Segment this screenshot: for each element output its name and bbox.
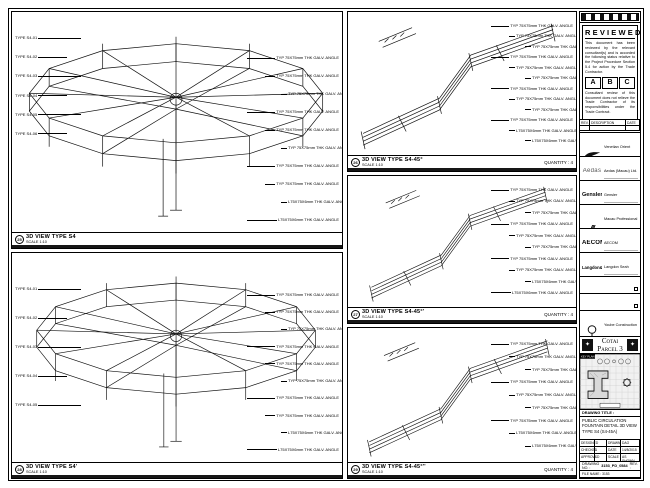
view-title-bar-s4: 25 3D VIEW TYPE S4 SCALE 1:10 [12,232,342,248]
langdon-seah-logo-icon: Langdon&Seah [582,265,602,270]
contractor-logo-icon [582,325,602,337]
drawing-sheet: TYPE S4-01TYPE S4-02TYPE S4-03TYPE S4-04… [8,8,644,481]
wireframe-pipes-icon [348,12,576,155]
drawing-s4-45-prime: TYP 75X75mm THK GALV. ANGLETYP 75X75mm T… [348,176,576,307]
view-scale: SCALE 1:10 [26,240,76,244]
consultant-checkbox [634,304,638,308]
consultant-row-empty-1 [580,277,640,294]
revision-label: REV. : [630,462,638,470]
consultant-name: Macau Professional Services Ltd. [604,217,637,229]
designed-label: DESIGNED [580,440,595,447]
ornament-icon: ✦ [627,339,638,351]
consultant-name: AECOM [604,241,618,245]
checked-value: - [595,447,607,454]
title-block: REVIEWED This document has been reviewed… [579,11,641,479]
checked-label: CHECKED [580,447,595,454]
reviewed-title: REVIEWED [585,28,635,39]
project-banner: ✦ Cotai Parcel 3 ✦ [580,337,640,354]
consultant-row-langdon: Langdon&Seah Langdon Seah [580,253,640,277]
info-table: DESIGNED DRAWN DAO CHECKED - DATE 14/8/2… [580,440,640,462]
viewport-s4-45-prime: TYP 75X75mm THK GALV. ANGLETYP 75X75mm T… [347,175,577,324]
consultant-row-aedas: Aedas Aedas (Macau) Ltd. [580,157,640,181]
detail-bubble: 27 [351,310,360,319]
scale-label: SCALE [607,454,621,462]
reviewed-paragraph-1: This document has been reviewed by the r… [585,41,635,75]
view-title-bar-s4-45-dprime: 29 3D VIEW TYPE S4-45°'' SCALE 1:10 QUAN… [348,462,576,478]
view-scale: SCALE 1:10 [362,163,423,167]
drawing-s4-45-dprime: TYP 75X75mm THK GALV. ANGLETYP 75X75mm T… [348,328,576,462]
file-info: FILE NAME : 3153 CAD FILE : B5_WORKING_D… [580,471,640,478]
drawn-label: DRAWN [607,440,621,447]
gensler-logo-icon: Gensler [582,192,602,198]
quantity-label: QUANTITY : 4 [544,312,573,317]
drawing-s4-prime: TYPE S4-01TYPE S4-02TYPE S4-03TYPE S4-04… [12,253,342,462]
quantity-label: QUANTITY : 4 [544,467,573,472]
key-plan-map-icon: KEY PLAN [580,354,640,409]
wireframe-pipes-icon [348,328,576,462]
date-label: DATE [607,447,621,454]
approved-value: - [595,454,607,462]
venetian-logo-icon [582,150,602,157]
view-title-bar-s4-prime: 28 3D VIEW TYPE S4' SCALE 1:10 [12,462,342,478]
wireframe-canopy-icon [12,253,342,462]
drawing-s4: TYPE S4-01TYPE S4-02TYPE S4-03TYPE S4-04… [12,12,342,232]
view-scale: SCALE 1:10 [362,470,426,474]
status-a: A [585,77,601,89]
drawing-s4-45: TYP 75X75mm THK GALV. ANGLETYP 75X75mm T… [348,12,576,155]
revision-table: REV. DESCRIPTION DATE [580,120,640,133]
aecom-logo-icon: AECOM [582,240,602,246]
status-c: C [619,77,635,89]
consultant-name: Langdon Seah [604,265,629,269]
drawn-value: DAO [621,440,640,447]
detail-bubble: 29 [351,465,360,474]
consultant-name: Venetian Orient Limited [604,145,630,157]
viewport-s4-45: TYP 75X75mm THK GALV. ANGLETYP 75X75mm T… [347,11,577,172]
contractor-name: Yoube Construction (Macau) Co. Ltd. [604,323,637,337]
status-boxes: A B C [585,77,635,89]
file-name-row: FILE NAME : 3153 [580,471,640,478]
wireframe-canopy-icon [12,12,342,232]
project-name: Cotai Parcel 3 [593,337,627,353]
quantity-label: QUANTITY : 4 [544,160,573,165]
drawing-number: 3153_PD_0584 [601,464,627,468]
consultant-row-gensler: Gensler Gensler [580,181,640,205]
designed-value [595,440,607,447]
scale-value: AS SHOWN [621,454,640,462]
consultant-row-venetian: Venetian Orient Limited [580,133,640,157]
viewport-s4-prime: TYPE S4-01TYPE S4-02TYPE S4-03TYPE S4-04… [11,252,343,479]
status-b: B [602,77,618,89]
scale-bar [580,12,640,23]
detail-bubble: 25 [15,235,24,244]
view-title-bar-s4-45: 26 3D VIEW TYPE S4-45° SCALE 1:10 QUANTI… [348,155,576,171]
detail-bubble: 26 [351,158,360,167]
view-title-bar-s4-45-prime: 27 3D VIEW TYPE S4-45°' SCALE 1:10 QUANT… [348,307,576,323]
approved-label: APPROVED [580,454,595,462]
drawing-title-label: DRAWING TITLE : [580,410,640,417]
aedas-logo-icon: Aedas [582,168,602,174]
consultant-row-mps: /// Macau Professional Services Ltd. [580,205,640,229]
ornament-icon: ✦ [582,339,593,351]
view-scale: SCALE 1:10 [26,470,77,474]
detail-bubble: 28 [15,465,24,474]
drawing-title: PUBLIC CIRCULATION FOUNTAIN DETAIL 3D VI… [580,417,640,435]
reviewed-stamp: REVIEWED This document has been reviewed… [580,23,640,120]
reviewed-paragraph-2: Consultant review of this document does … [585,91,635,115]
date-value: 14/8/2015 [621,447,640,454]
view-scale: SCALE 1:10 [362,315,424,319]
consultant-checkbox [634,287,638,291]
consultant-name: Gensler [604,193,617,197]
drawing-number-label: DRAWING NO. : [582,462,599,470]
viewport-s4-45-dprime: TYP 75X75mm THK GALV. ANGLETYP 75X75mm T… [347,327,577,479]
key-plan: KEY PLAN [580,354,640,410]
consultant-row-aecom: AECOM AECOM [580,229,640,253]
consultant-name: Aedas (Macau) Ltd. [604,169,637,173]
wireframe-pipes-icon [348,176,576,307]
drawing-title-box: DRAWING TITLE : PUBLIC CIRCULATION FOUNT… [580,410,640,440]
consultant-row-empty-2 [580,294,640,311]
contractor-row: Yoube Construction (Macau) Co. Ltd. [580,311,640,337]
key-plan-label: KEY PLAN [581,355,595,359]
viewport-s4: TYPE S4-01TYPE S4-02TYPE S4-03TYPE S4-04… [11,11,343,249]
drawing-number-row: DRAWING NO. : 3153_PD_0584 REV. : A [580,462,640,471]
